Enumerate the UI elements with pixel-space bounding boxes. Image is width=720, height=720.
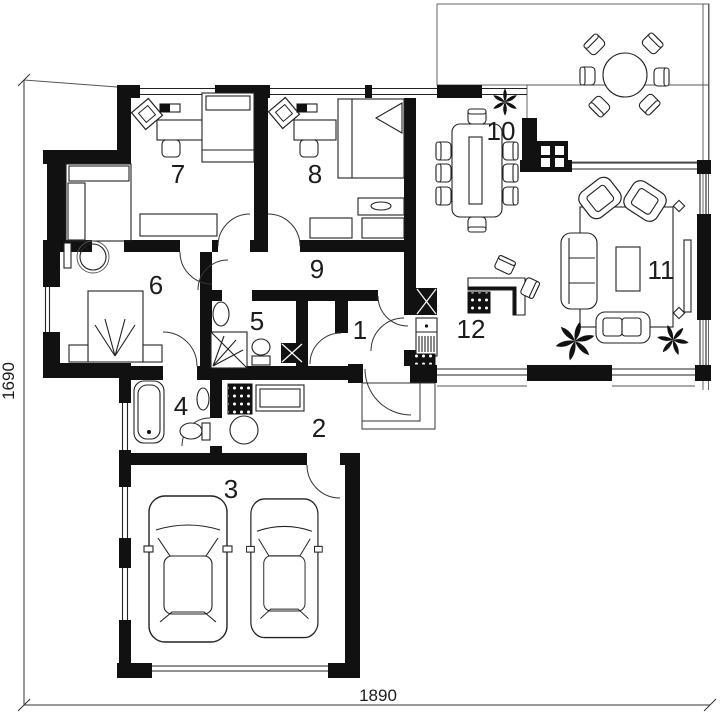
nightstand [69,345,88,362]
ventilation-shaft [416,288,437,315]
washbasin [213,302,229,326]
desk [157,120,203,140]
toilet [252,339,270,355]
boiler [416,318,437,356]
room-label-8: 8 [308,159,322,189]
nightstand [143,345,162,362]
washbasin [197,388,209,410]
dining-chair [436,164,451,182]
car [247,499,323,638]
room-9-corridor: 9 [310,254,324,284]
dining-chair [503,164,518,182]
floor-plan-image: 7 8 [0,0,720,720]
stove [228,384,252,414]
room-label-10: 10 [487,116,516,146]
ventilation-shaft [281,343,303,363]
doormat [413,354,435,365]
mirror [64,243,71,268]
room-label-11: 11 [648,255,675,285]
dining-chair [468,217,486,232]
keyboard [468,292,490,313]
sofa [561,233,597,309]
dresser [358,198,404,215]
dimension-label-bottom: 1890 [359,686,397,705]
room-label-3: 3 [224,474,238,504]
room-label-9: 9 [310,254,324,284]
room-label-5: 5 [250,306,264,336]
terrace-chair [580,67,595,85]
dining-chair [503,187,518,205]
dining-chair [468,109,486,124]
toilet [180,423,202,439]
single-bed [202,93,254,162]
chair [300,140,318,157]
room-label-2: 2 [312,413,326,443]
room-label-12: 12 [457,314,486,344]
terrace-chair [654,68,669,86]
sofa [596,312,650,343]
car [144,496,232,642]
dining-chair [436,142,451,160]
round-terrace-table [603,53,647,97]
room-label-1: 1 [353,315,367,345]
tv-panel [684,240,691,312]
floor-plan-drawing: 7 8 [0,0,720,720]
dining-chair [436,187,451,205]
dimension-label-left: 1690 [0,362,18,400]
room-label-4: 4 [174,391,188,421]
desk [294,120,336,140]
room-label-7: 7 [171,159,185,189]
boiler-tank [230,416,258,444]
coffee-table [616,247,640,291]
room-label-6: 6 [149,270,163,300]
chair [162,140,180,157]
